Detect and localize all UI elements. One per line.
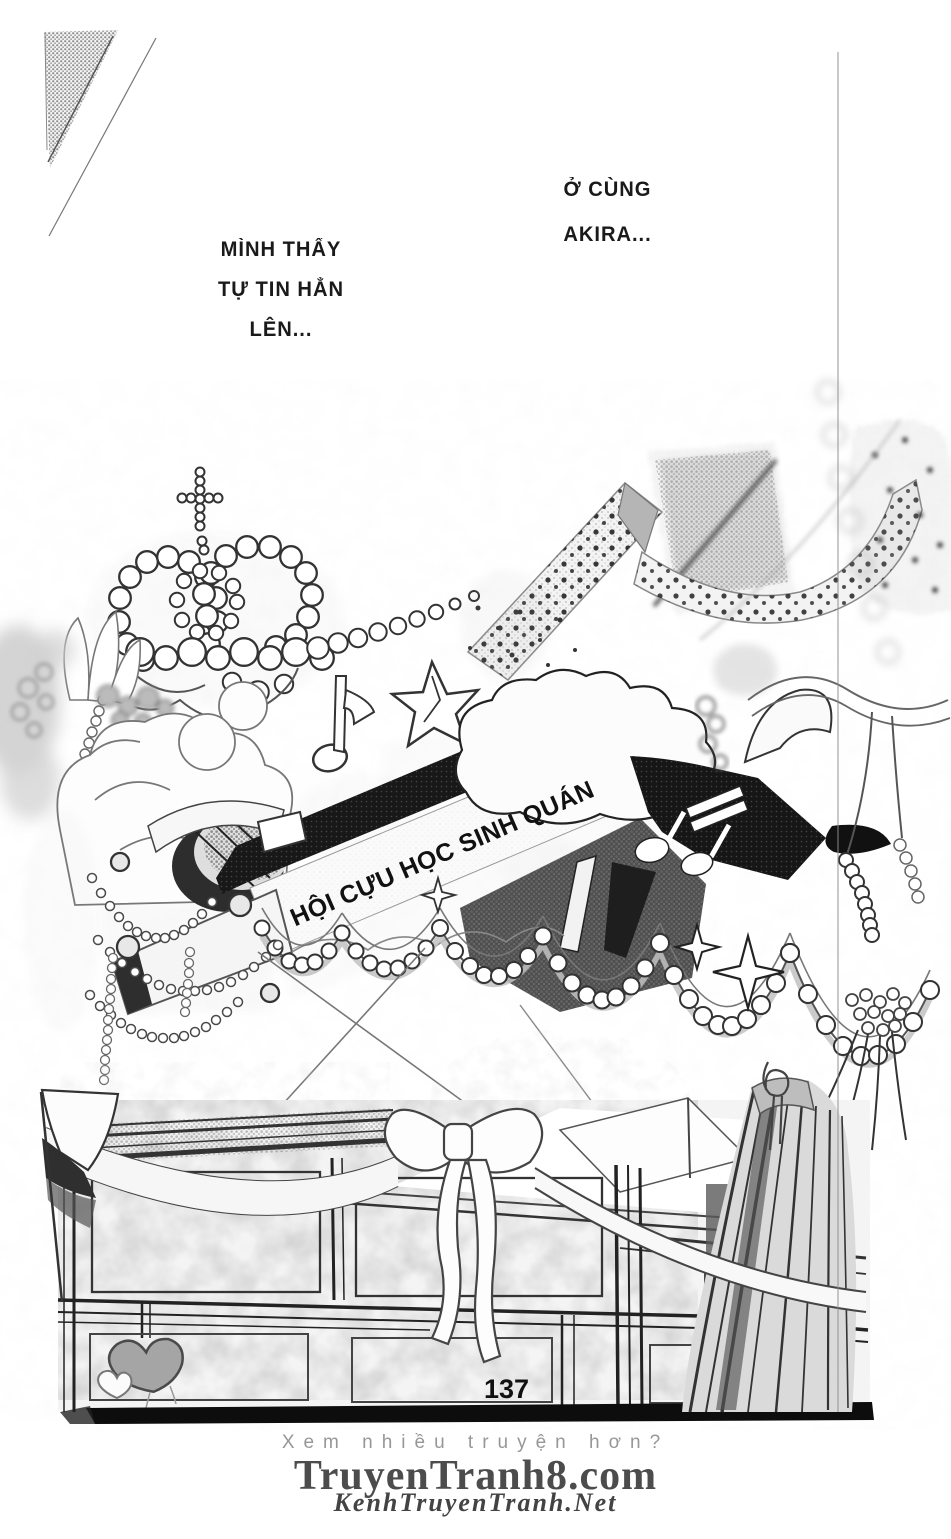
svg-text:137: 137 — [484, 1374, 529, 1404]
